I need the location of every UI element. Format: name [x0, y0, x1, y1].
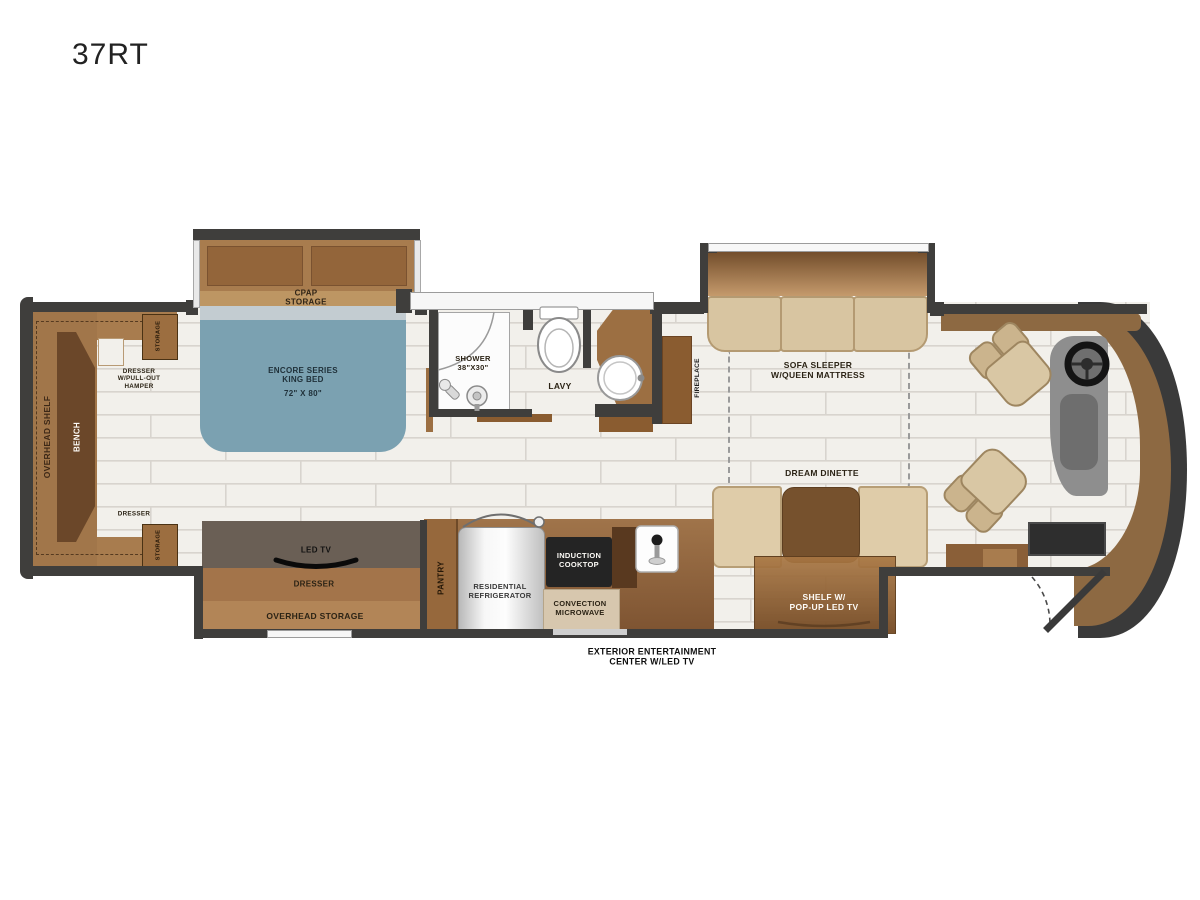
bath-wall-left	[429, 310, 438, 417]
cab-console	[1050, 336, 1108, 496]
bath-wall-shower-toilet	[523, 310, 533, 330]
label-dinette: DREAM DINETTE	[785, 468, 859, 478]
label-cooktop: INDUCTIONCOOKTOP	[557, 552, 601, 570]
label-shelf-tv: SHELF W/POP-UP LED TV	[790, 592, 859, 612]
label-overhead-storage: OVERHEAD STORAGE	[266, 611, 363, 621]
label-bedroom-dresser: DRESSER	[118, 510, 151, 517]
sofa-cushion	[707, 296, 782, 352]
floor-and-nose	[0, 0, 1200, 900]
entry-step-well	[1028, 522, 1106, 556]
sofa-cushion	[780, 296, 855, 352]
page-title: 37RT	[72, 38, 149, 72]
label-king-bed: ENCORE SERIESKING BED 72" X 80"	[268, 366, 338, 398]
slideout-wall-right	[879, 567, 888, 638]
label-exterior-entertainment: EXTERIOR ENTERTAINMENTCENTER W/LED TV	[588, 647, 717, 668]
bed-cabinet-inset-right	[311, 246, 407, 286]
label-microwave: CONVECTIONMICROWAVE	[553, 600, 606, 618]
sofa-back	[707, 250, 928, 296]
hamper-cabinet	[98, 338, 124, 366]
rear-cap-wall	[20, 297, 33, 579]
fireplace-wall	[652, 310, 662, 424]
label-fireplace: FIREPLACE	[694, 358, 702, 398]
cab-console-inner	[1060, 394, 1098, 470]
bed-slideout-sidewall-left	[193, 240, 200, 308]
sofa-cushions	[707, 296, 928, 352]
label-sofa: SOFA SLEEPERW/QUEEN MATTRESS	[771, 360, 865, 380]
refrigerator	[458, 527, 545, 635]
label-storage-bottom: STORAGE	[156, 530, 163, 561]
label-fridge: RESIDENTIALREFRIGERATOR	[469, 583, 532, 601]
bottom-window-galley	[553, 629, 627, 635]
label-media-dresser: DRESSER	[294, 579, 335, 588]
label-led-tv: LED TV	[301, 545, 331, 554]
top-wall-rear	[28, 302, 198, 312]
label-overhead-shelf: OVERHEAD SHELF	[42, 396, 52, 479]
label-cpap: CPAPSTORAGE	[285, 289, 327, 308]
cooktop-base-cabinet	[612, 527, 637, 588]
bath-window-band	[410, 292, 654, 310]
bath-wall-shower-bottom	[436, 409, 532, 417]
pantry-wall	[420, 520, 427, 638]
bottom-wall-front	[884, 567, 1110, 576]
sofa-slideout-window	[708, 243, 929, 252]
dash-top-band	[941, 313, 1141, 331]
top-wall-front	[935, 304, 1147, 314]
top-wall-mid	[650, 302, 704, 314]
label-shower: SHOWER38"X30"	[455, 355, 491, 373]
dinette-table	[782, 487, 860, 563]
label-hamper: DRESSERW/PULL-OUTHAMPER	[118, 368, 161, 390]
bath-wall-vanity-bottom	[595, 404, 655, 417]
label-lavy: LAVY	[548, 381, 571, 391]
bottom-wall-rear	[28, 566, 203, 576]
entry-cabinet-small	[983, 549, 1017, 567]
label-bench: BENCH	[72, 422, 81, 452]
label-storage-top: STORAGE	[156, 321, 163, 352]
bed-slideout-endwall	[193, 229, 420, 240]
exterior-mask	[884, 576, 1074, 642]
bottom-window-dresser	[267, 630, 352, 638]
floorplan-page: 37RT	[0, 0, 1200, 900]
label-pantry: PANTRY	[436, 561, 445, 595]
sofa-cushion	[853, 296, 928, 352]
fireplace	[662, 336, 692, 424]
bath-wall-toilet-vanity	[583, 310, 591, 368]
bed-cabinet-inset-left	[207, 246, 303, 286]
